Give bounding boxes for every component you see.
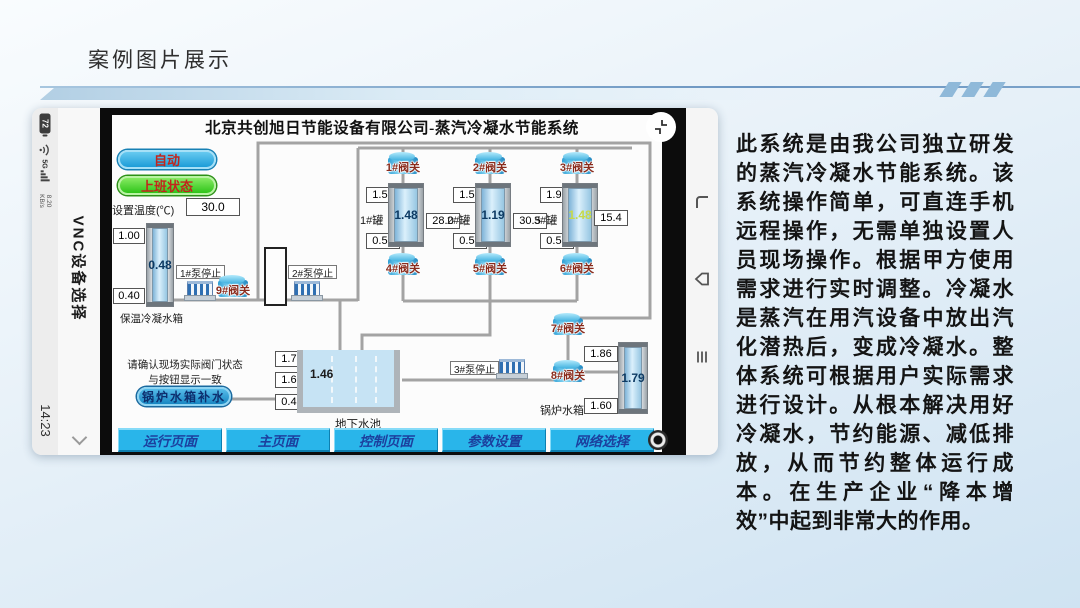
notice-line1: 请确认现场实际阀门状态 — [122, 357, 248, 372]
tank-2: 1.19 — [475, 183, 511, 247]
signal-icon: 5G — [32, 166, 58, 175]
auto-mode-button[interactable]: 自动 — [118, 150, 216, 169]
hmi-panel: 北京共创旭日节能设备有限公司-蒸汽冷凝水节能系统 自动 上班状态 设置温度(℃)… — [112, 115, 662, 452]
tank2-level: 1.19 — [476, 184, 510, 246]
lefttank-top-value: 1.00 — [113, 228, 145, 244]
network-speed: 8.20KB/s — [32, 194, 58, 208]
valve-1[interactable]: 1#阀关 — [388, 152, 418, 176]
nav-param-page[interactable]: 参数设置 — [442, 428, 546, 452]
tank-3: 1.48 — [562, 183, 598, 247]
description-text: 此系统是由我公司独立研发的蒸汽冷凝水节能系统。该系统操作简单，可直连手机远程操作… — [736, 130, 1014, 536]
tank1-level: 1.48 — [389, 184, 423, 246]
ribbon-banner — [40, 88, 960, 100]
tank1-name: 1#罐 — [360, 212, 383, 228]
pump-icon — [499, 359, 525, 375]
valve-5[interactable]: 5#阀关 — [475, 253, 505, 277]
android-nav-bar — [686, 108, 718, 455]
pool-level: 1.46 — [310, 367, 333, 381]
lefttank-bottom-value: 0.40 — [113, 288, 145, 304]
pump2-status[interactable]: 2#泵停止 — [288, 265, 337, 279]
set-temp-label: 设置温度(℃) — [112, 202, 174, 218]
nav-run-page[interactable]: 运行页面 — [118, 428, 222, 452]
valve-7[interactable]: 7#阀关 — [553, 313, 583, 337]
pump3-status[interactable]: 3#泵停止 — [450, 361, 499, 375]
valve-9-label: 9#阀关 — [216, 282, 250, 298]
set-temp-input[interactable]: 30.0 — [186, 198, 240, 216]
recents-icon[interactable] — [693, 193, 711, 211]
boiler-bottom-value: 1.60 — [584, 398, 618, 414]
menu-lines-icon[interactable] — [693, 348, 711, 366]
valve-2-label: 2#阀关 — [473, 159, 507, 175]
boiler-label: 锅炉水箱 — [540, 402, 584, 418]
lefttank-level: 0.48 — [147, 224, 173, 306]
back-icon[interactable] — [693, 270, 711, 288]
valve-3[interactable]: 3#阀关 — [562, 152, 592, 176]
valve-4-label: 4#阀关 — [386, 260, 420, 276]
page-title: 案例图片展示 — [88, 44, 232, 74]
valve-8-label: 8#阀关 — [551, 367, 585, 383]
valve-9[interactable]: 9#阀关 — [218, 275, 248, 299]
valve-8[interactable]: 8#阀关 — [553, 360, 583, 384]
boiler-top-value: 1.86 — [584, 346, 618, 362]
phone-screenshot: 72 5G 8.20KB/s 14:23 VNC设备选择 — [32, 108, 718, 455]
vnc-app-title: VNC设备选择 — [58, 258, 100, 279]
record-icon[interactable] — [648, 430, 668, 450]
valve-1-label: 1#阀关 — [386, 159, 420, 175]
insulated-condensate-tank: 0.48 — [146, 223, 174, 307]
tank3-flow-value: 15.4 — [594, 210, 628, 226]
notice-line2: 与按钮显示一致 — [122, 372, 248, 387]
wifi-icon — [32, 144, 58, 156]
boiler-level: 1.79 — [619, 343, 647, 413]
boiler-makeup-button[interactable]: 锅炉水箱补水 — [137, 387, 231, 406]
valve-6-label: 6#阀关 — [560, 260, 594, 276]
battery-icon: 72 — [32, 118, 58, 129]
hmi-title: 北京共创旭日节能设备有限公司-蒸汽冷凝水节能系统 — [182, 116, 602, 138]
heat-exchanger — [264, 247, 287, 306]
boiler-water-tank: 1.79 — [618, 342, 648, 414]
exit-fullscreen-icon[interactable] — [646, 112, 676, 142]
valve-6[interactable]: 6#阀关 — [562, 253, 592, 277]
valve-5-label: 5#阀关 — [473, 260, 507, 276]
valve-3-label: 3#阀关 — [560, 159, 594, 175]
nav-control-page[interactable]: 控制页面 — [334, 428, 438, 452]
pump-icon — [294, 281, 320, 297]
valve-7-label: 7#阀关 — [551, 320, 585, 336]
nav-network-page[interactable]: 网络选择 — [550, 428, 654, 452]
tank3-level: 1.48 — [563, 184, 597, 246]
tank-1: 1.48 — [388, 183, 424, 247]
valve-2[interactable]: 2#阀关 — [475, 152, 505, 176]
chevron-down-icon[interactable] — [58, 432, 100, 443]
shift-status-button[interactable]: 上班状态 — [118, 176, 216, 195]
tank3-name: 3#罐 — [534, 212, 557, 228]
nav-main-page[interactable]: 主页面 — [226, 428, 330, 452]
lefttank-label: 保温冷凝水箱 — [120, 311, 183, 326]
underground-pool — [297, 350, 400, 413]
pump-icon — [187, 281, 213, 297]
clock: 14:23 — [32, 413, 58, 428]
valve-4[interactable]: 4#阀关 — [388, 253, 418, 277]
vnc-screen: 北京共创旭日节能设备有限公司-蒸汽冷凝水节能系统 自动 上班状态 设置温度(℃)… — [100, 108, 686, 455]
ribbon-line — [40, 86, 1080, 88]
phone-status-bar: 72 5G 8.20KB/s 14:23 — [32, 108, 59, 455]
tank2-name: 2#罐 — [447, 212, 470, 228]
decor-slashes — [944, 82, 1001, 97]
